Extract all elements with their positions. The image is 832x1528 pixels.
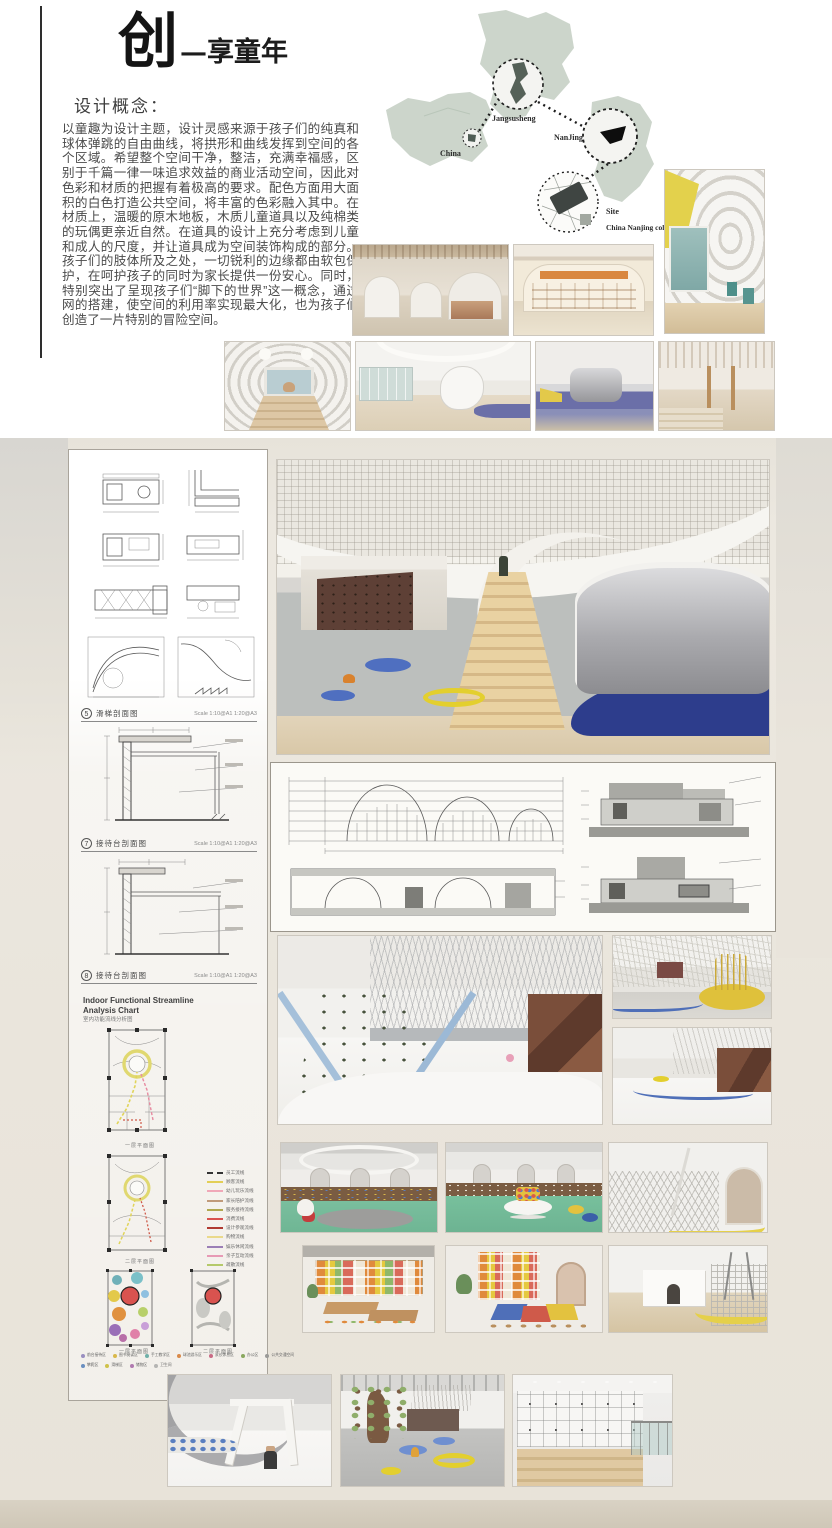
dotted-connector-2 [538,102,586,128]
arch-window-shape [311,1169,329,1189]
zone-legend: 前台接待区图书阅读区手工教学区球池游乐区家长休息区办公区公共交通空间攀爬区滑梯区… [81,1353,265,1373]
zone-dot [105,1364,109,1368]
analysis-title-line2: Analysis Chart [83,1006,139,1015]
arch-window-shape [558,1165,574,1183]
zone-dot [241,1354,245,1358]
legend-swatch [207,1172,223,1174]
zone-legend-item: 图书阅读区 [113,1353,138,1358]
legend-swatch [207,1264,223,1266]
chair-shape [743,288,754,304]
zone-label: 卫生间 [160,1363,171,1368]
render-reception-arch-hall [352,244,509,336]
ceiling-light-shape [301,348,313,360]
steps-shape [659,408,723,430]
zone-label: 滑梯区 [111,1363,122,1368]
drawing-scale: Scale 1:10@A1 1:20@A3 [194,973,257,979]
legend-item: 服务接待流线 [207,1207,267,1213]
window-shelf-shape [671,228,707,290]
zone-dot [81,1354,85,1358]
legend-item: 员工流线 [207,1170,267,1176]
render-storefront [513,244,654,336]
render-yellow-net-playground [612,935,772,1019]
arch-shape [365,277,399,317]
beanbag-shape [582,1213,598,1222]
spiral-stair-shape [440,366,484,410]
blue-balls-edge-shape [168,1437,238,1453]
long-section-drawing [285,863,567,925]
blue-floor-circle-shape [321,690,355,701]
arch-window-shape [518,1165,534,1183]
zone-dot [130,1364,134,1368]
drawing-number: 8 [81,970,92,981]
render-craft-table-room [445,1142,603,1233]
shelving-shape [532,283,636,309]
drawing-scale: Scale 1:10@A1 1:20@A3 [194,841,257,847]
analysis-title-line1: Indoor Functional Streamline [83,996,194,1005]
left-vertical-rule [40,6,42,358]
zone-legend-item: 前台接待区 [81,1353,106,1358]
brown-climbing-wall-shape [528,994,603,1072]
ceiling-cove-shape [376,341,516,362]
teddy-bear-shape [283,382,295,392]
arch-window-shape [351,1169,369,1189]
cross-section-drawing-b [579,853,765,925]
desk-section-8-caption: 8 接待台剖面图 Scale 1:10@A1 1:20@A3 [81,970,257,984]
legend-item: 设计参观流线 [207,1225,267,1231]
legend-item: 亲子互动流线 [207,1253,267,1259]
tree-leaves-mural-shape [347,1383,411,1439]
legend-item: 家长陪护流线 [207,1198,267,1204]
technical-drawings-panel: 5 滑梯剖面图 Scale 1:10@A1 1:20@A3 7 接待台剖面图 S… [68,449,268,1401]
child-figure-shape [499,556,508,576]
zone-dot [265,1354,269,1358]
toy-duck-shape [411,1447,419,1457]
detail-drawing-4 [181,522,247,574]
blue-floor-shape [474,404,531,418]
desk-section-drawing-7 [89,722,249,834]
ceiling-light-shape [259,348,271,360]
poster-title: 创 —享童年 [118,12,288,72]
glass-wall-shape [360,368,412,400]
render-net-swing-hall [608,1245,768,1333]
legend-swatch [207,1181,223,1183]
zone-legend-item: 球池游乐区 [177,1353,202,1358]
drawing-number: 7 [81,838,92,849]
wood-floor-shape [665,303,764,333]
legend-swatch [207,1190,223,1192]
blue-floor-circle-shape [433,1437,455,1445]
yellow-floor-circle-shape [381,1467,401,1475]
drawing-title: 滑梯剖面图 [96,708,139,719]
round-table-shape [504,1199,552,1215]
yellow-tube-edge-shape [669,1209,765,1233]
zone-dot [113,1354,117,1358]
render-tree-mural-hall [340,1374,505,1487]
streamline-legend: 员工流线顾客流线幼儿玩乐流线家长陪护流线服务接待流线消费流线设计参观流线购物流线… [207,1170,267,1271]
zone-label: 攀爬区 [87,1363,98,1368]
render-ballpit-under-nets [612,1027,772,1125]
title-suffix: —享童年 [180,16,288,69]
shelf-grid-overlay-shape [478,1252,540,1300]
beanbag-shape [568,1205,584,1214]
zone-legend-item: 手工教学区 [145,1353,170,1358]
glass-railing-shape [631,1421,673,1455]
map-label-site: Site [606,207,619,216]
drawing-title: 接待台剖面图 [96,838,147,849]
legend-swatch [207,1246,223,1248]
legend-label: 亲子互动流线 [226,1253,254,1259]
zone-dot [154,1364,158,1368]
yellow-table-shape [546,1304,579,1320]
render-white-lobby-spiral-stair [355,341,531,431]
plant-shape [456,1274,472,1294]
locker-wall-shape [517,1391,643,1447]
arch-shape [411,283,441,317]
blue-rim-shape [613,998,703,1012]
render-toddler-ballpit-slide [167,1374,332,1487]
wood-pole-shape [707,366,711,410]
legend-swatch [207,1209,223,1211]
china-map-shape [386,92,492,166]
zone-label: 家长休息区 [215,1353,234,1358]
blue-floor-circle-shape [365,658,411,672]
blue-rim-shape [633,1084,753,1100]
grey-rug-shape [317,1209,413,1229]
zone-legend-row: 前台接待区图书阅读区手工教学区球池游乐区家长休息区办公区公共交通空间 [81,1353,265,1358]
render-atrium-spiral-staircase [276,459,770,755]
zone-label: 手工教学区 [151,1353,170,1358]
render-arched-reading-corridor [664,169,765,334]
wood-ceiling-shape [353,245,508,259]
slide-section-drawing-a [85,634,167,704]
bubble-diagram-level2 [189,1268,237,1348]
detail-drawing-3 [97,522,171,574]
streamline-analysis-title: Indoor Functional Streamline Analysis Ch… [83,996,194,1024]
legend-label: 设计参观流线 [226,1225,254,1231]
zone-legend-item: 家长休息区 [209,1353,234,1358]
wood-pole-shape [731,366,735,410]
legend-label: 购物流线 [226,1234,244,1240]
chair-shape [727,282,737,296]
legend-item: 消费流线 [207,1216,267,1222]
legend-item: 疏散流线 [207,1262,267,1268]
streamline-plan-2 [105,1152,169,1256]
map-label-city: NanJing [554,133,583,142]
legend-label: 幼儿玩乐流线 [226,1188,254,1194]
arch-cabinet-shape [556,1262,586,1306]
plant-shape [307,1284,318,1298]
legend-item: 娱乐休闲流线 [207,1244,267,1250]
legend-swatch [207,1255,223,1257]
zone-label: 办公区 [247,1353,258,1358]
detail-drawing-5 [91,576,177,628]
mouse-hole-opening-shape [667,1284,680,1304]
design-concept-paragraph: 以童趣为设计主题，设计灵感来源于孩子们的纯真和球体弹跳的自由曲线，将拱形和曲线发… [62,122,359,328]
design-concept-heading: 设计概念： [74,92,169,117]
legend-swatch [207,1200,223,1202]
legend-item: 购物流线 [207,1234,267,1240]
render-blue-floor-lobby [535,341,654,431]
legend-label: 消费流线 [226,1216,244,1222]
zone-legend-item: 卫生间 [154,1363,171,1368]
bubble-diagram-level1 [105,1268,155,1348]
legend-label: 娱乐休闲流线 [226,1244,254,1250]
legend-swatch [207,1227,223,1229]
ceiling-lights-shape [523,1379,663,1385]
legend-label: 员工流线 [226,1170,244,1176]
desk-section-7-caption: 7 接待台剖面图 Scale 1:10@A1 1:20@A3 [81,838,257,852]
mesh-curtain-shape [411,1385,471,1411]
cross-section-drawing-a [579,775,765,849]
legend-label: 疏散流线 [226,1262,244,1268]
zone-label: 储物区 [136,1363,147,1368]
background-photo-bleed-left [0,438,68,778]
render-climbing-slide-ballpit [277,935,603,1125]
legend-label: 顾客流线 [226,1179,244,1185]
net-cage-shape [715,954,749,990]
ceiling-slats-shape [659,342,774,368]
reception-desk-shape [451,301,493,319]
zone-legend-item: 公共交通空间 [265,1353,294,1358]
render-art-classroom [302,1245,435,1333]
zone-label: 图书阅读区 [119,1353,138,1358]
slide-section-drawing-b [175,634,257,704]
drawing-number: 5 [81,708,92,719]
plan1-caption: 一层平面图 [125,1142,155,1149]
toddler-figure-shape [264,1451,277,1469]
background-photo-bleed-right [776,438,832,958]
flamingo-toy-shape [506,1054,514,1062]
slide-section-a-caption: 5 滑梯剖面图 Scale 1:10@A1 1:20@A3 [81,708,257,722]
streamline-plan-1 [105,1026,169,1138]
orange-signband-shape [540,271,628,279]
climbing-wall-opening-shape [317,572,413,630]
background-bottom-strip [0,1500,832,1528]
zone-dot [81,1364,85,1368]
render-white-net-climb [608,1142,768,1233]
wood-steps-shape [517,1449,643,1487]
render-colorful-work-room [445,1245,603,1333]
zone-legend-row: 攀爬区滑梯区储物区卫生间 [81,1363,265,1368]
title-character: 创 [118,12,178,72]
yellow-slide-shape [540,388,562,402]
render-locker-room-steps [512,1374,673,1487]
legend-swatch [207,1218,223,1220]
drawing-title: 接待台剖面图 [96,970,147,981]
wood-chairs-shape [486,1322,586,1330]
yellow-tube-edge-shape [695,1300,768,1324]
detail-drawing-2 [181,466,247,518]
legend-item: 顾客流线 [207,1179,267,1185]
toy-animal-shape [343,674,355,683]
detail-drawing-1 [97,466,171,518]
teddy-car-toy-shape [297,1199,314,1216]
plan2-caption: 二层平面图 [125,1258,155,1265]
zone-label: 公共交通空间 [271,1353,294,1358]
desk-section-drawing-8 [89,854,249,966]
legend-label: 服务接待流线 [226,1207,254,1213]
zone-legend-item: 办公区 [241,1353,258,1358]
yellow-floor-ring-shape [423,688,485,707]
zone-dot [177,1354,181,1358]
map-label-china: China [440,149,461,158]
silver-cylinder-shape [570,368,622,402]
legend-swatch [207,1236,223,1238]
elevation-drawings-panel [270,762,776,932]
render-tunnel-stairs [224,341,351,431]
detail-drawing-6 [181,576,247,628]
dark-doorway-shape [657,962,683,978]
drawing-scale: Scale 1:10@A1 1:20@A3 [194,711,257,717]
wood-steps-shape [249,396,329,430]
map-label-province: Jangsusheng [492,114,536,123]
legend-label: 家长陪护流线 [226,1198,254,1204]
yellow-floor-ring-shape [433,1453,475,1468]
shelf-grid-overlay-shape [315,1260,423,1296]
zone-label: 前台接待区 [87,1353,106,1358]
render-beige-activity-room [658,341,775,431]
zone-legend-item: 攀爬区 [81,1363,98,1368]
zone-legend-item: 滑梯区 [105,1363,122,1368]
yellow-spot-shape [653,1076,669,1082]
zone-legend-item: 储物区 [130,1363,147,1368]
arch-window-shape [391,1169,409,1189]
dark-opening-shape [407,1409,459,1431]
stools-shape [319,1318,419,1326]
arch-window-shape [474,1165,490,1183]
legend-item: 幼儿玩乐流线 [207,1188,267,1194]
render-reading-room [280,1142,438,1233]
analysis-title-cn: 室内功能流线分析图 [83,1017,194,1024]
zone-label: 球池游乐区 [183,1353,202,1358]
zone-dot [145,1354,149,1358]
zone-dot [209,1354,213,1358]
toy-blocks-shape [516,1187,540,1201]
arched-wall-elevation-drawing [285,771,567,859]
